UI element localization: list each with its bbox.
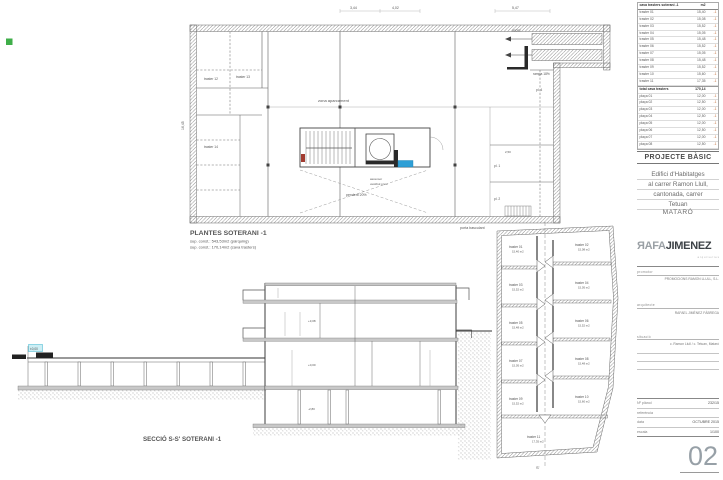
meta-value: 232/15 [708,401,719,405]
schedule-row: traster 06 15,52 -1 [638,44,718,51]
field-promotor: promotor PROMOCIONS RAMON LLULL, S.L. [637,270,719,281]
schedule-area: 15,52 [689,44,706,50]
schedule-name: plaça 07 [638,135,689,141]
schedule-area: 15,60 [689,72,706,78]
slope-label: pendent 20% [346,193,367,197]
schedule-area: 12,50 [689,114,706,120]
schedule-area: 12,00 [689,107,706,113]
schedule-name: plaça 03 [638,107,689,113]
schedule-level: -1 [706,31,719,37]
dim-label: 4,02 [392,6,399,10]
balconies [243,290,265,338]
schedule-row: traster 10 15,60 -1 [638,72,718,79]
schedule-name: traster 11 [638,79,689,85]
field-label: situació [637,335,719,341]
basement-floor-plan: 3,44 4,02 5,47 16,45 [181,6,610,250]
schedule-level: -1 [706,58,719,64]
stall-label: pl. 4 [536,88,542,92]
schedule-name: plaça 02 [638,100,689,106]
earth-hatch [253,428,465,436]
schedule-name: traster 08 [638,58,689,64]
schedule-area: 15,52 [689,65,706,71]
schedule-level: -1 [706,121,719,127]
logo-tagline: a r q u i t e c t e s [637,255,719,259]
schedule-row: traster 04 15,05 -1 [638,31,718,38]
meta-value: 1/100 [710,430,719,434]
svg-text:traster 04: traster 04 [575,281,589,285]
schedule-area: 15,40 [689,10,706,16]
schedule-level: -1 [706,17,719,23]
stall-label: pl. 2 [494,197,500,201]
project-address: Edifici d'Habitatges al carrer Ramon Llu… [637,170,719,210]
field-arquitecte: arquitecte RAFAEL JIMÉNEZ FÀBREGA [637,303,719,314]
gate-label: porta basculant [460,226,485,230]
meta-label: referència [637,411,719,415]
schedule-area: 12,00 [689,94,706,100]
schedule-name: traster 04 [638,31,689,37]
earth-hatch [18,391,266,400]
svg-text:15,52 m2: 15,52 m2 [512,287,524,291]
access-label: accés [512,29,521,33]
svg-text:traster 02: traster 02 [575,243,589,247]
schedule-area: 12,00 [689,121,706,127]
schedule-area: m2 [689,3,706,9]
stair-to-trasters [505,206,531,216]
ramp-slope [300,170,428,213]
dim-label: 5,47 [512,6,519,10]
svg-text:15,52 m2: 15,52 m2 [512,401,524,405]
level-marker-text: ±0,00 [30,347,38,351]
schedule-row: plaça 09 12,35 -1 [638,149,718,150]
schedule-name: plaça 06 [638,128,689,134]
svg-text:traster 11: traster 11 [527,435,540,439]
schedule-area: 12,50 [689,128,706,134]
red-marker [301,154,305,162]
schedule-row: plaça 02 12,50 -1 [638,100,718,107]
schedule-area: 12,50 [689,100,706,106]
schedule-row: plaça 04 12,50 -1 [638,114,718,121]
svg-text:15,52 m2: 15,52 m2 [578,323,590,327]
address-line: Edifici d'Habitatges [637,170,719,180]
schedule-area: 15,48 [689,37,706,43]
dim-label-vertical: 16,45 [181,121,185,130]
schedule-name: traster 02 [638,17,689,23]
schedule-area: 17,35 [689,79,706,85]
schedule-row: plaça 07 12,00 -1 [638,135,718,142]
schedule-level: -1 [706,79,719,85]
svg-text:15,05 m2: 15,05 m2 [512,363,524,367]
svg-text:traster 08: traster 08 [575,357,589,361]
meta-label: Nº plànol [637,401,708,405]
schedule-level: -1 [706,142,719,148]
sheet-number-text: 02 [680,441,719,473]
building-section [243,283,492,461]
svg-text:traster 07: traster 07 [509,359,523,363]
blue-marker [398,161,413,168]
schedule-row: plaça 08 12,50 -1 [638,142,718,149]
schedule-name: cava trasters soterani -1 [638,3,689,9]
signature-rule [637,354,719,362]
schedule-row: traster 07 15,05 -1 [638,51,718,58]
field-situacio: situació c. Ramon Llull / c. Tetuan, Mat… [637,335,719,370]
schedule-level: -1 [706,10,719,16]
schedule-row: traster 01 15,40 -1 [638,10,718,17]
schedule-row: traster 02 15,08 -1 [638,17,718,24]
schedule-row: total cava trasters 170,14 [638,86,718,94]
level-label: +0,00 [308,363,316,367]
svg-text:15,08 m2: 15,08 m2 [578,247,590,251]
meta-row: Nº plànol 232/15 [637,399,719,409]
room-label: traster 13 [236,75,250,79]
meta-row: escala 1/100 [637,428,719,437]
svg-text:17,35 m2: 17,35 m2 [532,439,544,443]
svg-text:traster 05: traster 05 [509,321,523,325]
schedule-area: 15,05 [689,51,706,57]
svg-text:traster 01: traster 01 [509,245,523,249]
schedule-level: -1 [706,135,719,141]
schedule-row: plaça 06 12,50 -1 [638,128,718,135]
address-line: cantonada, carrer [637,190,719,200]
drawing-sheet: 3,44 4,02 5,47 16,45 [0,0,723,480]
schedule-name: plaça 05 [638,121,689,127]
logo-first: ЯAFA [637,240,666,252]
svg-text:15,48 m2: 15,48 m2 [578,361,590,365]
svg-text:traster 06: traster 06 [575,319,589,323]
basement-columns [45,362,245,386]
level-label: -2,80 [308,407,315,411]
schedule-level: -1 [706,44,719,50]
schedule-area: 15,52 [689,24,706,30]
section-title: SECCIÓ S-S' SOTERANI -1 [143,435,222,443]
plan-interior-lines [197,32,554,217]
schedule-name: total cava trasters [638,87,689,93]
stall-label: pl. 1 [494,164,500,168]
trasters-plan: traster 01 15,40 m2 traster 02 15,08 m2 … [497,222,618,470]
section-drawing: ±0,00 [12,283,492,461]
schedule-area: 15,05 [689,31,706,37]
svg-text:traster 03: traster 03 [509,283,523,287]
floor-slab [18,386,266,390]
svg-text:15,05 m2: 15,05 m2 [578,285,590,289]
meta-row: referència [637,409,719,419]
room-label: traster 14 [204,145,218,149]
lobby-label: vestíbul previ [370,182,388,186]
level-label: +3,08 [308,319,316,323]
schedule-name: traster 01 [638,10,689,16]
schedule-area: 12,35 [689,149,706,150]
schedule-row: plaça 01 12,00 -1 [638,94,718,101]
schedule-name: traster 03 [638,24,689,30]
schedule-level: -1 [706,107,719,113]
schedule-name: traster 10 [638,72,689,78]
schedule-row: traster 03 15,52 -1 [638,24,718,31]
schedule-level: -1 [706,51,719,57]
field-label: promotor [637,270,719,276]
dim-label: 3,44 [350,6,357,10]
drawing-canvas: 3,44 4,02 5,47 16,45 [0,0,635,480]
project-type: PROJECTE BÀSIC [637,151,719,164]
schedule-area: 12,50 [689,142,706,148]
schedule-name: plaça 08 [638,142,689,148]
schedule-area: 15,48 [689,58,706,64]
schedule-level: -1 [706,114,719,120]
sheet-meta-table: Nº plànol 232/15 referència data OCTUBRE… [637,398,719,437]
schedule-name: plaça 04 [638,114,689,120]
schedule-level: -1 [706,94,719,100]
ramp-label: rampa 18% [533,72,550,76]
meta-label: data [637,420,692,424]
schedule-row: traster 05 15,48 -1 [638,37,718,44]
schedule-level: -1 [706,37,719,43]
schedule-name: traster 05 [638,37,689,43]
eaves [456,288,472,338]
schedule-level: -1 [706,24,719,30]
project-city: MATARÓ [637,209,719,216]
schedule-name: plaça 01 [638,94,689,100]
schedule-row: plaça 05 12,00 -1 [638,121,718,128]
schedule-area: 170,14 [689,87,706,93]
schedule-level: -1 [706,128,719,134]
address-line: al carrer Ramon Llull, [637,180,719,190]
signature-rule [637,346,719,354]
schedule-area: 12,00 [689,135,706,141]
schedule-row: traster 11 17,35 -1 [638,79,718,86]
section-marker-end: S' [536,465,540,470]
schedule-name: traster 07 [638,51,689,57]
meta-row: data OCTUBRE 2015 [637,418,719,428]
plan-area-1: sup. const.: 543,53m2 (pàrquing) [190,239,249,244]
field-value: RAFAEL JIMÉNEZ FÀBREGA [637,311,719,315]
meta-label: escala [637,430,710,434]
logo-second: JIMENEZ [666,240,712,252]
svg-text:15,40 m2: 15,40 m2 [512,249,524,253]
section-basement-columns [298,390,440,424]
schedule-level: -1 [706,65,719,71]
title-block-fields: promotor PROMOCIONS RAMON LLULL, S.L. ar… [637,266,719,384]
meta-value: OCTUBRE 2015 [692,420,719,424]
schedule-name: traster 09 [638,65,689,71]
schedule-row: cava trasters soterani -1 m2 [638,3,718,10]
schedule-row: traster 09 15,52 -1 [638,65,718,72]
field-value: PROMOCIONS RAMON LLULL, S.L. [637,277,719,281]
stair-core [300,128,443,167]
svg-text:15,48 m2: 15,48 m2 [512,325,524,329]
schedule-name: plaça 09 [638,149,689,150]
sheet-number: 02 [637,441,719,473]
green-marker [6,39,13,46]
plan-title: PLANTES SOTERANI -1 [190,230,267,237]
svg-text:traster 09: traster 09 [509,397,523,401]
schedule-row: traster 08 15,48 -1 [638,58,718,65]
lift-label: ascensor [370,177,382,181]
field-label: arquitecte [637,303,719,309]
door-swing [430,137,443,150]
schedule-level: -1 [706,100,719,106]
title-block: cava trasters soterani -1 m2 traster 01 … [633,0,723,480]
signature-rule [637,362,719,370]
svg-text:15,60 m2: 15,60 m2 [578,399,590,403]
earth-hatch-right [458,333,491,461]
plan-dashed-partitions [197,32,541,217]
schedule-level: -1 [706,149,719,150]
room-label: traster 12 [204,77,218,81]
zone-label: zona aparcament [318,98,350,103]
dim-label: 2,50 [505,150,511,154]
plan-area-2: sup. const.: 170,14m2 (cava trasters) [190,245,257,250]
schedule-name: traster 06 [638,44,689,50]
schedule-level: -1 [706,72,719,78]
area-schedule-table: cava trasters soterani -1 m2 traster 01 … [637,2,719,150]
schedule-row: plaça 03 12,00 -1 [638,107,718,114]
svg-text:traster 10: traster 10 [575,395,589,399]
architect-logo: ЯAFAJIMENEZ a r q u i t e c t e s [637,236,719,259]
schedule-area: 15,08 [689,17,706,23]
